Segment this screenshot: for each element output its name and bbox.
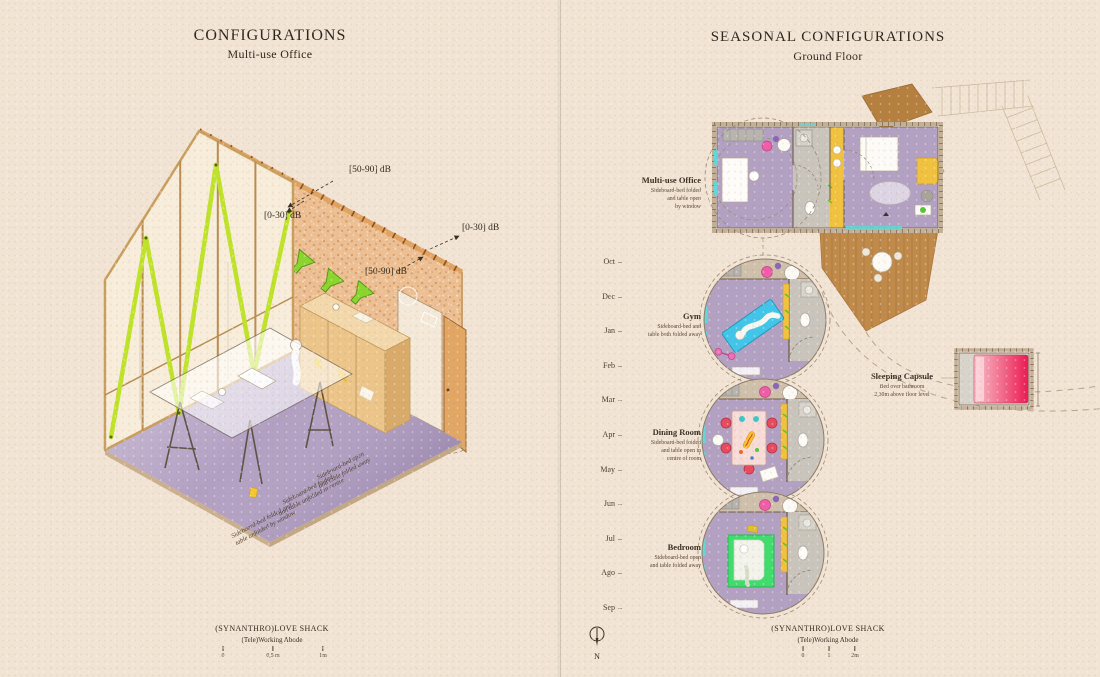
scale-tick: 0,5 m bbox=[266, 646, 279, 659]
project-series: (Tele)Working Abode bbox=[728, 636, 928, 644]
scale-tick: 0 bbox=[222, 646, 225, 659]
scale-tick: 0 bbox=[802, 646, 805, 659]
timeline-month: Oct– bbox=[574, 257, 622, 292]
isometric-drawing bbox=[0, 0, 557, 677]
north-arrow-icon bbox=[588, 625, 606, 647]
timeline-month: Mar– bbox=[574, 395, 622, 430]
detail-bedroom bbox=[702, 492, 824, 614]
deck-table bbox=[872, 252, 892, 272]
sleeping-capsule-plan bbox=[941, 350, 1040, 408]
scale-tick: 2m bbox=[851, 646, 858, 659]
project-title: (SYNANTHRO)LOVE SHACK bbox=[728, 624, 928, 633]
timeline-month: Ago– bbox=[574, 568, 622, 603]
main-floor-plan bbox=[713, 123, 944, 231]
project-series: (Tele)Working Abode bbox=[172, 636, 372, 644]
architecture-poster: { "left_panel": { "title": "CONFIGURATIO… bbox=[0, 0, 1100, 677]
north-arrow: N bbox=[588, 625, 606, 661]
north-label: N bbox=[588, 652, 606, 661]
project-title: (SYNANTHRO)LOVE SHACK bbox=[172, 624, 372, 633]
ghost-stairs bbox=[932, 80, 1065, 200]
timeline-month: Feb– bbox=[574, 361, 622, 396]
config-label-sleeping-capsule: Sleeping Capsule Bed over bathroom 2,30m… bbox=[856, 371, 948, 399]
db-label-roof: [50-90] dB bbox=[349, 165, 391, 175]
right-footer: (SYNANTHRO)LOVE SHACK (Tele)Working Abod… bbox=[728, 624, 928, 644]
config-label-office: Multi-use Office Sideboard-bed folded an… bbox=[601, 175, 701, 211]
timeline-month: May– bbox=[574, 465, 622, 500]
db-label-wall: [50-90] dB bbox=[365, 267, 407, 277]
db-label-door: [0-30] dB bbox=[462, 223, 499, 233]
deck bbox=[820, 228, 938, 336]
detail-gym bbox=[704, 259, 826, 381]
left-footer: (SYNANTHRO)LOVE SHACK (Tele)Working Abod… bbox=[172, 624, 372, 644]
scale-tick: 1m bbox=[319, 646, 326, 659]
config-label-dining: Dining Room Sideboard-bed folded and tab… bbox=[601, 427, 701, 463]
timeline-month: Jun– bbox=[574, 499, 622, 534]
scale-tick: 1 bbox=[828, 646, 831, 659]
detail-dining bbox=[702, 379, 824, 501]
db-label-glazing: [0-30] dB bbox=[264, 211, 301, 221]
config-label-gym: Gym Sideboard-bed and table both folded … bbox=[601, 311, 701, 339]
config-label-bedroom: Bedroom Sideboard-bed open and table fol… bbox=[601, 542, 701, 570]
